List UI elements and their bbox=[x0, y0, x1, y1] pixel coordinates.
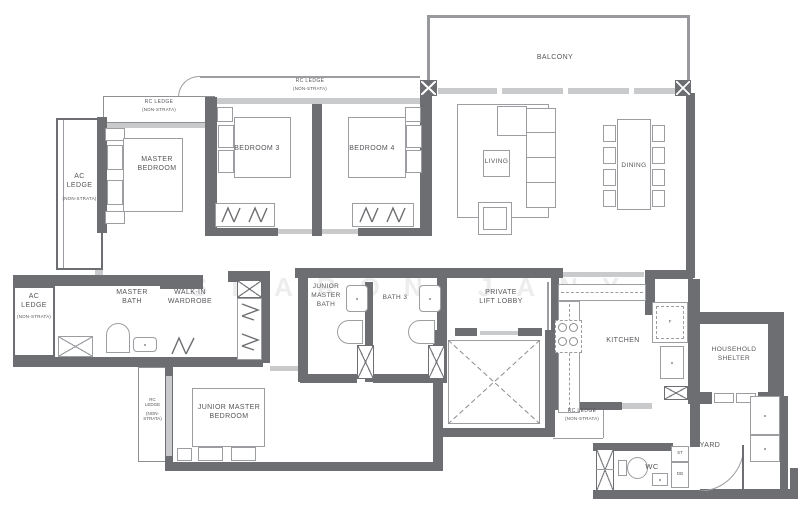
washer bbox=[750, 396, 780, 435]
toilet bbox=[408, 320, 435, 344]
lift-shaft-wall bbox=[433, 428, 555, 437]
ledge-label-ac-mid-left: AC LEDGE bbox=[13, 292, 55, 311]
vent-shaft bbox=[237, 280, 262, 298]
ledge-sublabel-rc-yard: (NON-STRATA) bbox=[552, 416, 612, 422]
coffee-table bbox=[483, 207, 507, 230]
nightstand bbox=[405, 107, 421, 122]
room-label-bath3: BATH 3 bbox=[377, 294, 413, 303]
wall-segment bbox=[300, 374, 357, 383]
nightstand bbox=[217, 107, 233, 122]
pillow bbox=[406, 150, 422, 173]
room-label-living: LIVING bbox=[481, 158, 512, 167]
sofa-cushion-line bbox=[526, 157, 556, 158]
vent-shaft-divider bbox=[596, 469, 614, 470]
floor-plan: SHARON JANY bbox=[0, 0, 800, 505]
tag-st: ST bbox=[671, 451, 689, 456]
dining-chair bbox=[603, 190, 616, 207]
wall-segment bbox=[312, 104, 322, 236]
wardrobe-rail-icon bbox=[220, 206, 242, 224]
dryer bbox=[750, 435, 780, 462]
stove-burner-icon bbox=[569, 337, 578, 346]
ledge-sublabel-rc-top-left: (NON-STRATA) bbox=[103, 107, 215, 113]
rc-ledge-arc bbox=[178, 76, 200, 97]
room-label-wc: WC bbox=[641, 462, 663, 472]
nightstand bbox=[105, 211, 125, 224]
ledge-sublabel-ac-mid-left: (NON-STRATA) bbox=[13, 314, 55, 320]
door-sill bbox=[622, 403, 652, 409]
wall-segment bbox=[262, 271, 270, 363]
tag-db: DB bbox=[671, 472, 689, 477]
wall-segment bbox=[205, 228, 278, 236]
dining-chair bbox=[652, 125, 665, 142]
sink bbox=[419, 285, 441, 312]
balcony-wall bbox=[427, 15, 690, 89]
pillow bbox=[406, 125, 422, 148]
closet-rail-icon bbox=[240, 302, 260, 322]
door-leaf bbox=[742, 445, 744, 490]
wardrobe-rail-icon bbox=[247, 206, 269, 224]
pillow bbox=[218, 150, 234, 173]
wall-segment bbox=[690, 400, 700, 447]
room-label-bedroom4: BEDROOM 4 bbox=[336, 144, 408, 153]
door-sill bbox=[322, 229, 358, 234]
ledge-sublabel-rc-bottom-left: (NON- STRATA) bbox=[139, 412, 166, 422]
wall-segment bbox=[165, 462, 443, 471]
sink bbox=[652, 473, 668, 486]
wardrobe-rail-icon bbox=[170, 336, 196, 356]
ledge-label-rc-top-left: RC LEDGE bbox=[103, 99, 215, 106]
dining-chair bbox=[652, 169, 665, 186]
wardrobe-rail-icon bbox=[385, 206, 407, 224]
nightstand bbox=[177, 448, 192, 461]
room-label-junior-master-bedroom: JUNIOR MASTER BEDROOM bbox=[190, 403, 268, 422]
column bbox=[420, 80, 437, 96]
tag-fridge: F bbox=[652, 320, 688, 325]
ledge-line bbox=[553, 438, 603, 439]
tall-cabinet bbox=[660, 346, 684, 379]
sofa-cushion-line bbox=[526, 132, 556, 133]
ledge-sublabel-ac-top-left: (NON-STRATA) bbox=[58, 196, 101, 202]
wall-segment bbox=[688, 279, 700, 312]
room-label-kitchen: KITCHEN bbox=[598, 336, 648, 345]
stove-burner-icon bbox=[569, 323, 578, 332]
vent-shaft bbox=[596, 449, 614, 491]
sofa bbox=[526, 108, 556, 208]
room-label-dining: DINING bbox=[616, 162, 652, 171]
room-label-junior-master-bath: JUNIOR MASTER BATH bbox=[306, 283, 346, 309]
wall-segment bbox=[653, 270, 693, 279]
room-label-master-bath: MASTER BATH bbox=[112, 288, 152, 307]
wall-segment bbox=[160, 275, 203, 289]
door-sill bbox=[270, 366, 298, 371]
toilet bbox=[337, 320, 363, 344]
door-swing-arc bbox=[700, 445, 744, 491]
room-label-household-shelter: HOUSEHOLD SHELTER bbox=[701, 346, 767, 364]
room-label-bedroom3: BEDROOM 3 bbox=[222, 144, 292, 153]
hall-line bbox=[547, 282, 549, 330]
closet-rail-icon bbox=[240, 332, 260, 352]
toilet bbox=[106, 323, 130, 353]
ledge-label-rc-yard: RC LEDGE bbox=[552, 408, 612, 415]
shower bbox=[58, 336, 93, 357]
nightstand bbox=[105, 128, 125, 141]
room-label-walk-in-wardrobe: WALK-IN WARDROBE bbox=[158, 288, 222, 307]
dining-chair bbox=[603, 125, 616, 142]
ledge-sublabel-rc-top-center: (NON-STRATA) bbox=[255, 86, 365, 92]
ledge-label-ac-top-left: AC LEDGE bbox=[58, 172, 101, 191]
wall-segment bbox=[13, 357, 263, 367]
sink bbox=[346, 285, 368, 312]
counter-centerline bbox=[561, 292, 643, 293]
pillow bbox=[107, 145, 123, 170]
room-label-master-bedroom: MASTER BEDROOM bbox=[131, 155, 183, 174]
ledge-label-rc-bottom-left: RC LEDGE bbox=[139, 398, 166, 408]
wall-segment bbox=[780, 396, 788, 493]
room-label-private-lift-lobby: PRIVATE LIFT LOBBY bbox=[466, 288, 536, 307]
room-label-balcony: BALCONY bbox=[505, 53, 605, 62]
wall-segment bbox=[593, 490, 700, 499]
sink bbox=[133, 337, 157, 352]
wall-segment bbox=[518, 328, 542, 336]
wall-segment bbox=[358, 228, 432, 236]
wall-segment bbox=[455, 328, 477, 336]
lift-shaft-cross-icon bbox=[448, 340, 540, 424]
ledge-label-rc-top-center: RC LEDGE bbox=[255, 78, 365, 85]
bed bbox=[123, 138, 183, 212]
vent-shaft bbox=[357, 345, 374, 379]
stove-burner-icon bbox=[558, 337, 567, 346]
window bbox=[166, 376, 172, 456]
ac-ledge-line bbox=[63, 120, 64, 268]
dining-chair bbox=[652, 190, 665, 207]
wardrobe-rail-icon bbox=[358, 206, 380, 224]
lift-door-sill bbox=[480, 331, 518, 335]
wall-segment bbox=[790, 468, 798, 499]
wall-segment bbox=[13, 275, 160, 286]
room-label-yard: YARD bbox=[692, 441, 728, 450]
wall-segment bbox=[295, 268, 447, 278]
wall-segment bbox=[447, 268, 563, 278]
sofa-cushion-line bbox=[526, 182, 556, 183]
pillow bbox=[198, 447, 223, 461]
stove-burner-icon bbox=[558, 323, 567, 332]
vent-shaft bbox=[428, 345, 445, 379]
dining-chair bbox=[603, 169, 616, 186]
column bbox=[675, 80, 691, 96]
wall-segment bbox=[686, 93, 695, 278]
dining-chair bbox=[652, 147, 665, 164]
toilet-tank bbox=[618, 460, 627, 476]
wall-segment bbox=[433, 437, 443, 467]
pillow bbox=[107, 180, 123, 205]
dining-chair bbox=[603, 147, 616, 164]
shelter-door-leaf bbox=[714, 393, 734, 403]
door-sill bbox=[560, 272, 644, 277]
door-sill bbox=[278, 229, 312, 234]
vent-shaft bbox=[664, 386, 688, 400]
sofa bbox=[497, 106, 527, 136]
pillow bbox=[231, 447, 256, 461]
